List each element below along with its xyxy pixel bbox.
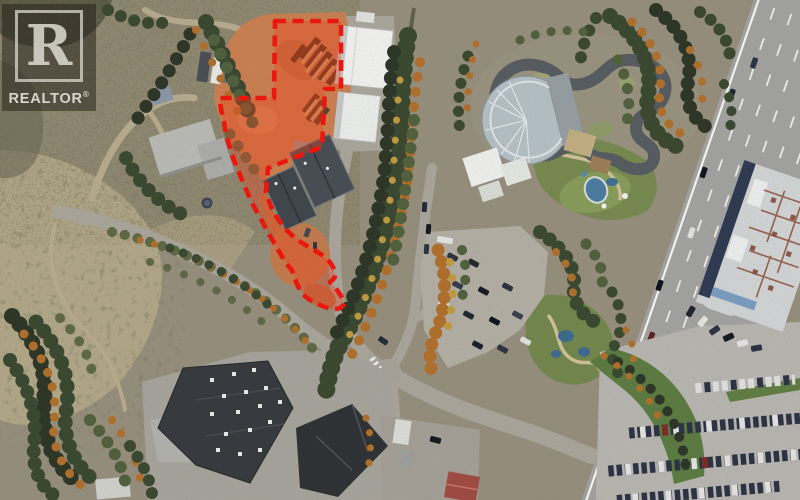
aerial-photo xyxy=(0,0,800,500)
aerial-map: R REALTOR® xyxy=(0,0,800,500)
realtor-watermark: R REALTOR® xyxy=(2,4,96,111)
photo-grain xyxy=(0,0,800,500)
realtor-logo-letter: R xyxy=(26,18,73,74)
realtor-logo-r: R xyxy=(15,10,83,82)
realtor-logo-label: REALTOR® xyxy=(8,90,89,107)
registered-trademark-symbol: ® xyxy=(83,90,90,99)
